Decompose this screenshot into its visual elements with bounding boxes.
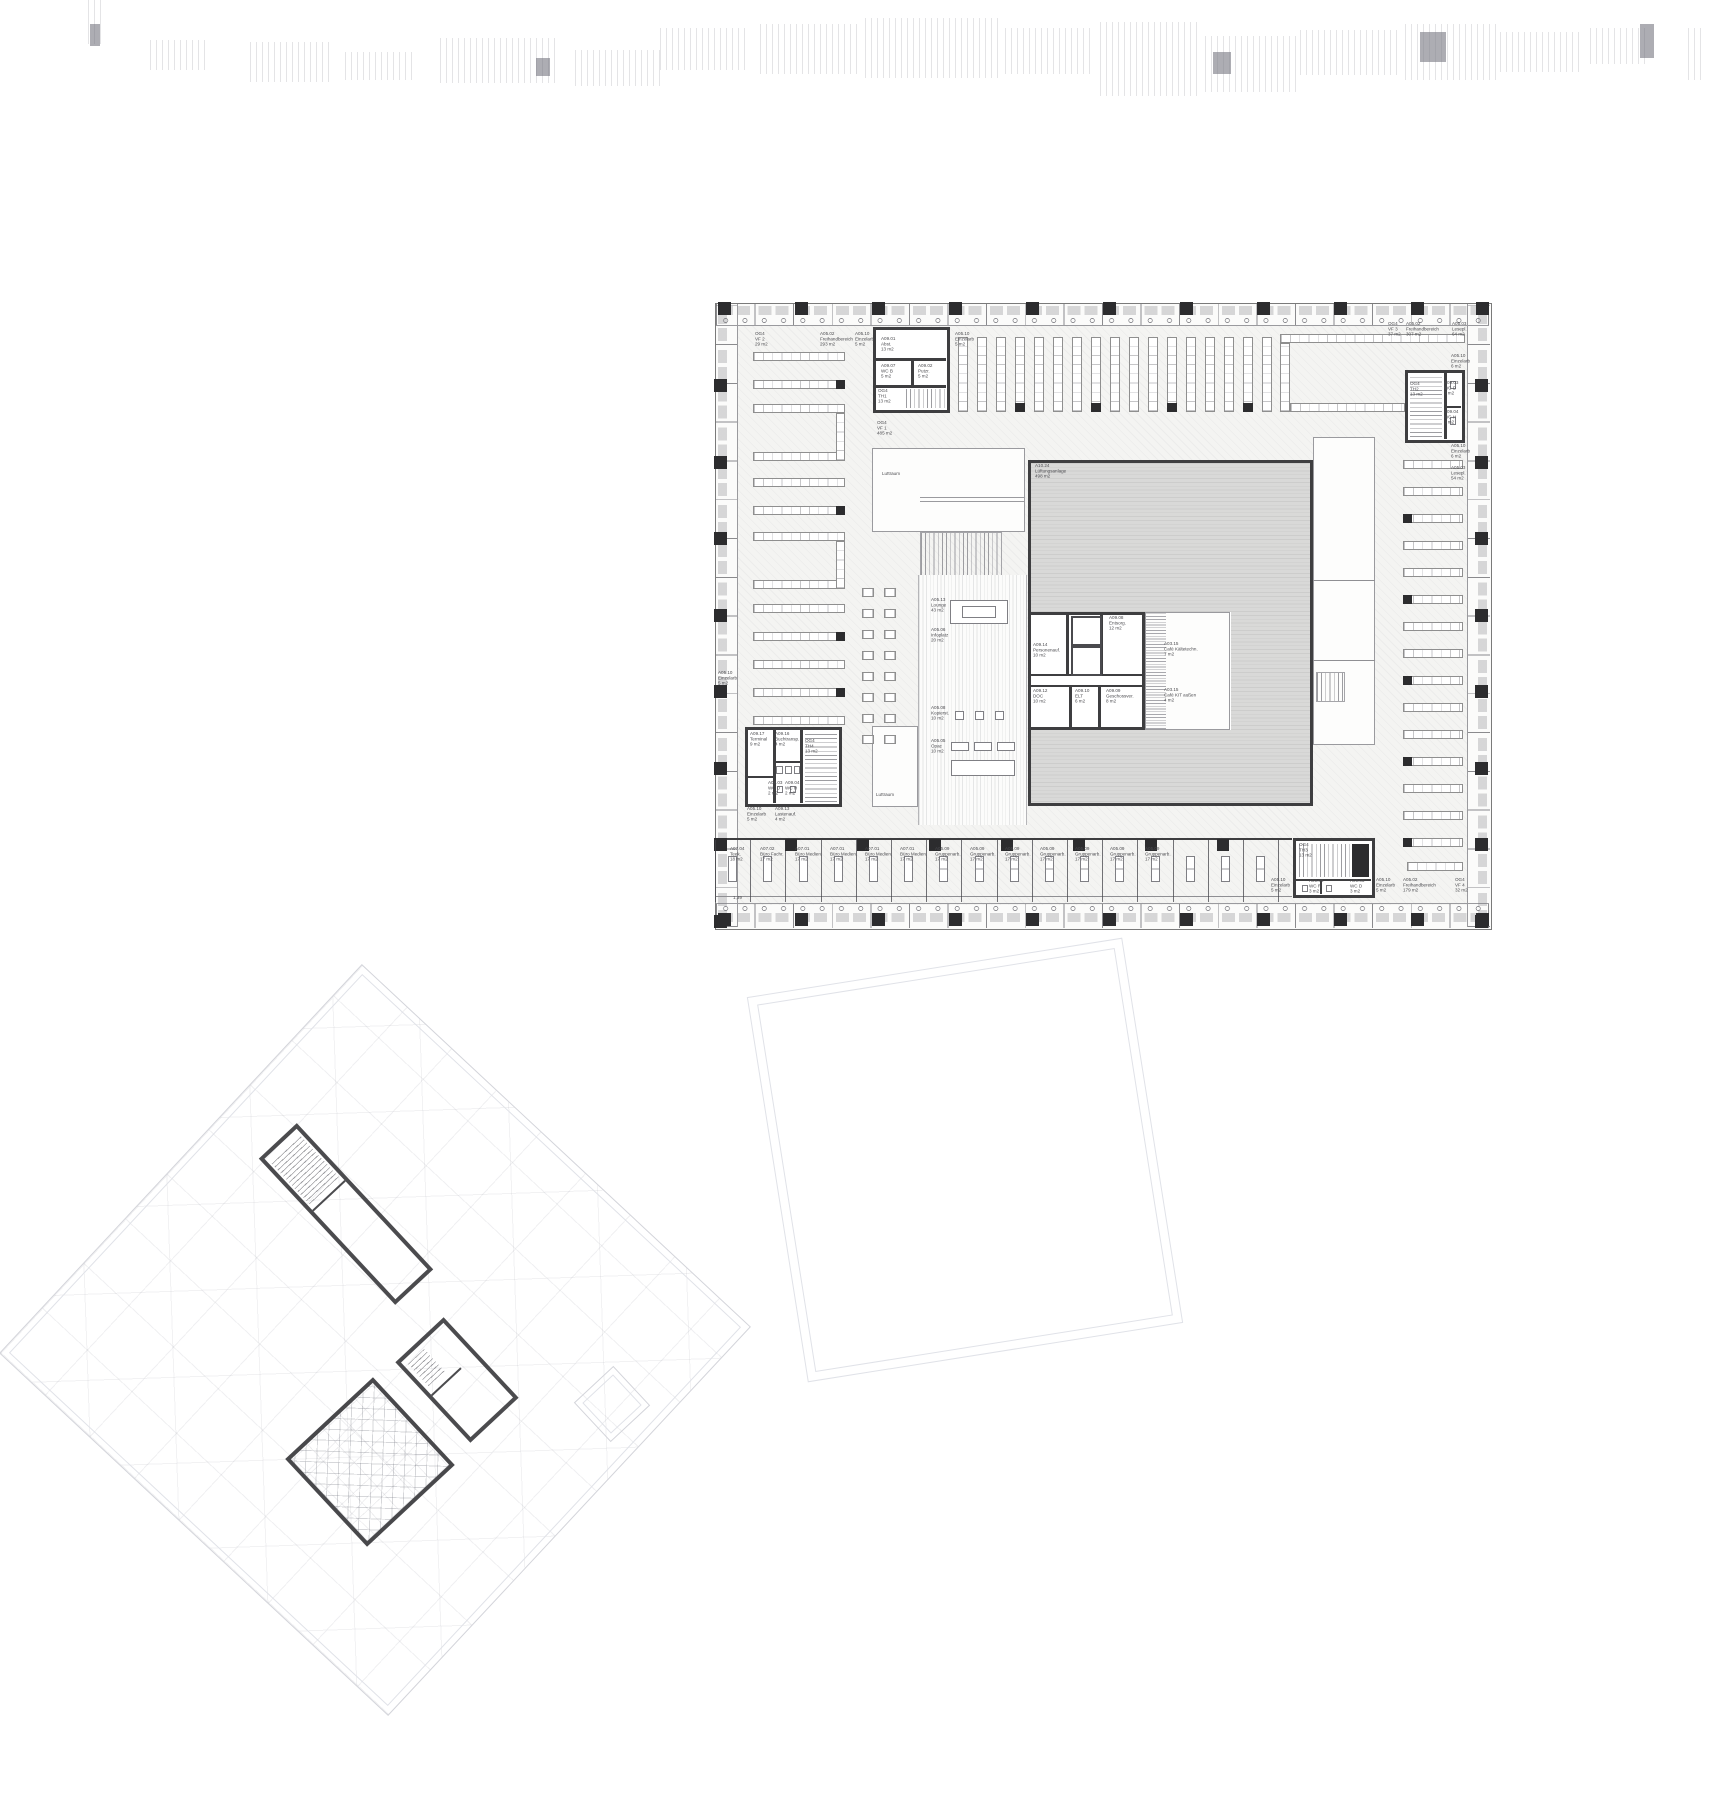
bookshelf	[1403, 514, 1463, 523]
room-label: OG4VF 432 m2	[1455, 878, 1468, 894]
column-marker	[1403, 757, 1412, 766]
ghost-fragment	[250, 42, 332, 82]
office-partition	[961, 840, 962, 902]
wall	[773, 761, 802, 763]
bookshelf	[753, 688, 845, 697]
room-label: A05.10Einzelarb6 m2	[1451, 444, 1470, 460]
office-partition	[1243, 840, 1244, 902]
gallery-line	[1313, 660, 1375, 661]
elevator-shaft	[1071, 646, 1102, 676]
bookshelf	[1403, 703, 1463, 712]
room-label-area: 17 m2	[865, 858, 892, 863]
room-label-area: 64 m2	[1452, 333, 1467, 338]
ghost-fragment	[1405, 24, 1497, 80]
carrel-desk	[862, 672, 874, 681]
room-label-area: 5 m2	[881, 375, 895, 380]
room-label-area: 307 m2	[1406, 333, 1439, 338]
room-label: A05.09Gruppenarb.17 m2	[1040, 847, 1066, 863]
room-label-name: 1,39	[733, 896, 742, 901]
room-label-area: 5 m2	[918, 375, 932, 380]
adjacent-roof-outline	[747, 938, 1183, 1383]
room-label-area: 2 m2	[785, 792, 799, 797]
room-label: A09.04WC H2 m2	[785, 781, 799, 797]
bookshelf	[1403, 757, 1463, 766]
room-label-area: 498 m2	[1035, 475, 1066, 480]
bookshelf	[753, 478, 845, 487]
room-label: A09.14Personenauf.10 m2	[1033, 643, 1060, 659]
column-marker	[714, 915, 727, 928]
column-marker	[714, 379, 727, 392]
bookshelf	[1403, 730, 1463, 739]
bookshelf	[1262, 337, 1272, 412]
column-marker	[1403, 595, 1412, 604]
column-marker	[1103, 913, 1116, 926]
room-label: A07.01Büro Medien.17 m2	[795, 847, 822, 863]
bookshelf	[1167, 337, 1177, 412]
room-label: A05.09Gruppenarb.17 m2	[1145, 847, 1171, 863]
carrel-desk	[862, 651, 874, 660]
room-label: A03.15Café KIT außen4 m2	[1164, 688, 1196, 704]
gallery-line	[1313, 580, 1375, 581]
stair-treads	[408, 1349, 445, 1386]
room-label: OG4VF 229 m2	[755, 332, 768, 348]
room-label: A05.02Freihandbereich179 m2	[1403, 878, 1436, 894]
room-label: A09.12DOC10 m2	[1033, 689, 1047, 705]
room-label-area: 9 m2	[750, 743, 767, 748]
room-label-area: 6 m2	[1451, 365, 1470, 370]
room-label-area: 5 m2	[955, 343, 974, 348]
column-marker	[795, 302, 808, 315]
bookshelf	[1407, 862, 1463, 871]
ghost-fragment	[536, 58, 550, 76]
ghost-fragment	[660, 28, 750, 70]
column-marker	[836, 380, 845, 389]
wc-fixture	[1326, 885, 1332, 892]
bookshelf	[1403, 676, 1463, 685]
room-label: A09.08Entsorg.12 m2	[1109, 616, 1126, 632]
text-label: 1,39	[733, 896, 742, 901]
room-label: A05.06Infoplatz20 m2	[931, 628, 948, 644]
room-label-area: 6 m2	[1451, 455, 1470, 460]
column-marker	[714, 762, 727, 775]
room-label-area: 12 m2	[1109, 627, 1126, 632]
room-label: A05.02Freihandbereich307 m2	[1406, 322, 1439, 338]
column-marker	[1026, 913, 1039, 926]
bookshelf	[1072, 337, 1082, 412]
room-label-area: 10 m2	[931, 750, 945, 755]
ghost-fragment	[345, 52, 415, 80]
column-marker	[872, 302, 885, 315]
text-label: Luftraum	[882, 472, 900, 477]
bookshelf	[1403, 649, 1463, 658]
room-label-area: 3 m2	[1350, 890, 1364, 895]
column-marker	[714, 532, 727, 545]
carrel-desk	[884, 630, 896, 639]
luftraum-void-upper	[872, 448, 1025, 532]
room-label: A09.05WC D3 m2	[1350, 879, 1364, 895]
column-marker	[836, 506, 845, 515]
column-marker	[1091, 403, 1101, 412]
carrel-desk	[884, 714, 896, 723]
room-label: A03.15Café Kältetechn.7 m2	[1164, 642, 1198, 658]
column-marker	[872, 913, 885, 926]
office-partition	[997, 840, 998, 902]
group-table	[1256, 856, 1265, 882]
roof-diagrid-outline	[0, 964, 751, 1716]
room-label-area: 32 m2	[1455, 889, 1468, 894]
room-label: A09.04WC H3 m2	[1444, 410, 1458, 426]
room-label-area: 17 m2	[795, 858, 822, 863]
ghost-fragment	[760, 24, 860, 74]
ghost-fragment	[90, 24, 100, 46]
locker	[785, 766, 792, 774]
room-label: A07.04Teek.18 m2	[730, 847, 744, 863]
ghost-fragment	[1005, 28, 1095, 74]
bookshelf	[958, 337, 968, 412]
carrel-desk	[862, 714, 874, 723]
room-label-area: 17 m2	[1005, 858, 1031, 863]
wall	[800, 730, 803, 803]
room-label-area: 5 m2	[718, 682, 737, 687]
room-label-area: 17 m2	[1110, 858, 1136, 863]
column-marker	[1475, 915, 1488, 928]
bookshelf	[1186, 337, 1196, 412]
column-marker	[1411, 302, 1424, 315]
column-marker	[1103, 302, 1116, 315]
room-label: A05.03Lesepl.64 m2	[1452, 322, 1467, 338]
perimeter-chairs	[716, 317, 1489, 324]
bookshelf	[1403, 622, 1463, 631]
room-label-area: 17 m2	[935, 858, 961, 863]
room-label-name: Luftraum	[876, 793, 894, 798]
column-marker	[836, 688, 845, 697]
column-marker	[1167, 403, 1177, 412]
bookshelf	[1129, 337, 1139, 412]
opac-counter	[951, 760, 1015, 776]
void-railing	[920, 497, 1025, 502]
bookshelf	[836, 413, 845, 461]
column-marker	[1403, 514, 1412, 523]
column-marker	[1334, 913, 1347, 926]
bookshelf	[1403, 811, 1463, 820]
ghost-fragment	[1500, 32, 1582, 72]
room-label: A05.10Einzelarb5 m2	[955, 332, 974, 348]
office-partition	[750, 840, 751, 902]
carrel-desk	[862, 693, 874, 702]
lounge-table-inner	[962, 606, 996, 618]
bookshelf	[753, 506, 845, 515]
room-label: OG4TH313 m2	[1299, 843, 1312, 859]
room-label: A09.16Buchtransp.4 m2	[775, 732, 799, 748]
cafe-louvers	[1146, 613, 1166, 729]
room-label-area: 5 m2	[747, 818, 766, 823]
column-marker	[795, 913, 808, 926]
bookshelf	[1091, 337, 1101, 412]
room-label: A07.02Büro Fachr.17 m2	[760, 847, 784, 863]
ghost-fragment	[865, 18, 1000, 78]
wall	[1066, 612, 1069, 676]
carrel-desk	[862, 588, 874, 597]
copier	[975, 711, 984, 720]
bookshelf	[977, 337, 987, 412]
room-label: OG4VF 337 m2	[1388, 322, 1401, 338]
bookshelf	[1403, 784, 1463, 793]
office-partition	[1032, 840, 1033, 902]
bookshelf	[753, 380, 845, 389]
bookshelf	[996, 337, 1006, 412]
carrel-desk	[884, 693, 896, 702]
room-label: OG4TH213 m2	[1410, 382, 1423, 398]
room-label: A05.10Einzelarb5 m2	[718, 671, 737, 687]
carrel-desk	[862, 735, 874, 744]
bookshelf	[1290, 403, 1405, 412]
group-table	[1186, 856, 1195, 882]
office-glazing-line	[715, 896, 1292, 897]
room-label-area: 10 m2	[1033, 700, 1047, 705]
room-label-area: 5 m2	[1376, 889, 1395, 894]
room-label: A09.06WC R3 m2	[1309, 879, 1323, 895]
column-marker	[1026, 302, 1039, 315]
bookshelf	[1403, 487, 1463, 496]
room-label-area: 10 m2	[1033, 654, 1060, 659]
bookshelf	[1034, 337, 1044, 412]
bookshelf	[753, 580, 845, 589]
bookshelf	[1243, 337, 1253, 412]
room-label: A05.09Gruppenarb.17 m2	[1005, 847, 1031, 863]
room-label: A09.17Terminal9 m2	[750, 732, 767, 748]
room-label-area: 4 m2	[775, 818, 796, 823]
bookshelf	[1224, 337, 1234, 412]
column-marker	[718, 302, 731, 315]
column-marker	[714, 456, 727, 469]
room-label-area: 293 m2	[820, 343, 853, 348]
office-partition	[1173, 840, 1174, 902]
room-label: A05.10Einzelarb5 m2	[1271, 878, 1290, 894]
wc-fixture	[1302, 885, 1308, 892]
column-marker	[1475, 379, 1488, 392]
room-label: A05.09Gruppenarb.17 m2	[1110, 847, 1136, 863]
carrel-desk	[884, 609, 896, 618]
column-marker	[1180, 302, 1193, 315]
room-label: A07.01Büro Medien.17 m2	[865, 847, 892, 863]
bookshelf	[836, 541, 845, 589]
stair-to-void	[920, 532, 1002, 577]
room-label-area: 13 m2	[881, 348, 895, 353]
column-marker	[1475, 685, 1488, 698]
opac-table	[997, 742, 1015, 751]
wall	[1444, 406, 1461, 408]
room-label: A07.01Büro Medien.17 m2	[830, 847, 857, 863]
room-label-area: 13 m2	[1299, 854, 1312, 859]
column-marker	[836, 632, 845, 641]
wall	[1098, 687, 1101, 730]
group-table	[1221, 856, 1230, 882]
office-partition	[715, 840, 716, 902]
adjacent-roof-inner	[757, 948, 1173, 1372]
gallery-stair	[1316, 672, 1345, 702]
room-label: OG4TH113 m2	[878, 389, 891, 405]
bookshelf	[1053, 337, 1063, 412]
locker	[794, 766, 800, 774]
wall	[1069, 687, 1072, 730]
room-label-area: 43 m2	[931, 609, 946, 614]
room-label: A05.09Gruppenarb.17 m2	[970, 847, 996, 863]
column-marker	[1476, 302, 1489, 315]
column-marker	[1475, 838, 1488, 851]
room-label-name: Luftraum	[882, 472, 900, 477]
room-label: A10.24Lüftungsanlage498 m2	[1035, 464, 1066, 480]
column-marker	[1334, 302, 1347, 315]
bookshelf	[753, 604, 845, 613]
column-marker	[1403, 838, 1412, 847]
room-label-area: 7 m2	[1164, 653, 1198, 658]
room-label: A09.13Lastenauf.4 m2	[775, 807, 796, 823]
opac-table	[951, 742, 969, 751]
room-label: A05.08Kopierst.10 m2	[931, 706, 949, 722]
room-label: A05.10Einzelarb5 m2	[1376, 878, 1395, 894]
room-label: A05.10Einzelarb5 m2	[855, 332, 874, 348]
column-marker	[1257, 302, 1270, 315]
office-partition	[1208, 840, 1209, 902]
room-label: A05.10Einzelarb5 m2	[747, 807, 766, 823]
room-label: A09.03WC D3 m2	[1444, 381, 1458, 397]
roof-inner-line	[9, 974, 741, 1706]
room-label-area: 3 m2	[1444, 392, 1458, 397]
column-marker	[1475, 609, 1488, 622]
column-marker	[714, 685, 727, 698]
room-label-area: 54 m2	[1451, 477, 1466, 482]
bookshelf	[1015, 337, 1025, 412]
room-label: A07.01Büro Medien.17 m2	[900, 847, 927, 863]
copier	[995, 711, 1004, 720]
room-label: A05.13Lounge43 m2	[931, 598, 946, 614]
bookshelf	[753, 532, 845, 541]
room-label-area: 17 m2	[830, 858, 857, 863]
room-label: A09.07WC B5 m2	[881, 364, 895, 380]
bookshelf	[753, 632, 845, 641]
room-label: OG4VF 1485 m2	[877, 421, 892, 437]
column-marker	[1180, 913, 1193, 926]
bookshelf	[1148, 337, 1158, 412]
ghost-fragment	[150, 40, 210, 70]
room-label-area: 3 m2	[1444, 421, 1458, 426]
room-label-area: 37 m2	[1388, 333, 1401, 338]
ghost-fragment	[575, 50, 660, 86]
stair-treads	[906, 389, 946, 408]
room-label: A09.10ELT6 m2	[1075, 689, 1089, 705]
column-marker	[1243, 403, 1253, 412]
ghost-fragment	[1640, 24, 1654, 58]
room-label-area: 17 m2	[1075, 858, 1101, 863]
column-marker	[1475, 456, 1488, 469]
bookshelf	[1403, 595, 1463, 604]
copier	[955, 711, 964, 720]
carrel-desk	[862, 609, 874, 618]
bookshelf	[753, 660, 845, 669]
room-label-area: 13 m2	[878, 400, 891, 405]
room-label: A05.02Freihandbereich293 m2	[820, 332, 853, 348]
column-marker	[1257, 913, 1270, 926]
room-label-area: 17 m2	[970, 858, 996, 863]
room-label-area: 5 m2	[1271, 889, 1290, 894]
elevator-shaft	[1071, 616, 1102, 646]
room-label: A05.03Lesepl.54 m2	[1451, 466, 1466, 482]
column-marker	[1015, 403, 1025, 412]
shaft-block	[1352, 844, 1369, 877]
room-label-area: 6 m2	[1075, 700, 1089, 705]
wall	[1028, 685, 1145, 687]
bookshelf	[753, 452, 845, 461]
drawing-sheet: OG4VF 229 m2A05.02Freihandbereich293 m2A…	[0, 0, 1718, 1800]
room-label-area: 4 m2	[775, 743, 799, 748]
carrel-desk	[884, 651, 896, 660]
room-label-area: 4 m2	[1164, 699, 1196, 704]
ghost-fragment	[1205, 36, 1297, 92]
room-label: A09.03WC D2 m2	[768, 781, 782, 797]
room-label: A05.09Gruppenarb.17 m2	[935, 847, 961, 863]
room-label-area: 29 m2	[755, 343, 768, 348]
bookshelf	[1403, 568, 1463, 577]
opac-table	[974, 742, 992, 751]
room-label-area: 2 m2	[768, 792, 782, 797]
room-label-area: 5 m2	[855, 343, 874, 348]
column-marker	[1403, 676, 1412, 685]
carrel-desk	[884, 735, 896, 744]
room-label: A09.02Putzr.5 m2	[918, 364, 932, 380]
column-marker	[949, 913, 962, 926]
ghost-fragment	[1300, 30, 1400, 75]
bookshelf	[1110, 337, 1120, 412]
bookshelf	[1403, 541, 1463, 550]
room-label-area: 10 m2	[931, 717, 949, 722]
bookshelf	[1280, 343, 1290, 412]
column-marker	[949, 302, 962, 315]
room-label-area: 17 m2	[1145, 858, 1171, 863]
bookshelf	[753, 404, 845, 413]
wall	[748, 776, 775, 778]
room-label-area: 13 m2	[805, 750, 818, 755]
text-label: Luftraum	[876, 793, 894, 798]
room-label-area: 8 m2	[1106, 700, 1134, 705]
carrel-desk	[884, 672, 896, 681]
room-label: A05.05Opac10 m2	[931, 739, 945, 755]
room-label: A09.09Geschossver.8 m2	[1106, 689, 1134, 705]
room-label: A09.01Abst.13 m2	[881, 337, 895, 353]
office-partition	[1067, 840, 1068, 902]
room-label-area: 13 m2	[1410, 393, 1423, 398]
column-marker	[1475, 762, 1488, 775]
room-label: A05.10Einzelarb6 m2	[1451, 354, 1470, 370]
room-label-area: 17 m2	[1040, 858, 1066, 863]
office-partition	[1102, 840, 1103, 902]
carrel-desk	[884, 588, 896, 597]
locker	[776, 766, 783, 774]
bookshelf	[1205, 337, 1215, 412]
carrel-desk	[862, 630, 874, 639]
room-label-area: 20 m2	[931, 639, 948, 644]
ghost-fragment	[1100, 22, 1200, 96]
room-label-area: 18 m2	[730, 858, 744, 863]
column-marker	[714, 838, 727, 851]
room-label-area: 3 m2	[1309, 890, 1323, 895]
wall	[911, 358, 914, 387]
room-label-area: 485 m2	[877, 432, 892, 437]
column-marker	[714, 609, 727, 622]
room-label: OG4TH413 m2	[805, 739, 818, 755]
ghost-fragment	[1688, 28, 1704, 80]
room-label-area: 179 m2	[1403, 889, 1436, 894]
column-marker	[1411, 913, 1424, 926]
